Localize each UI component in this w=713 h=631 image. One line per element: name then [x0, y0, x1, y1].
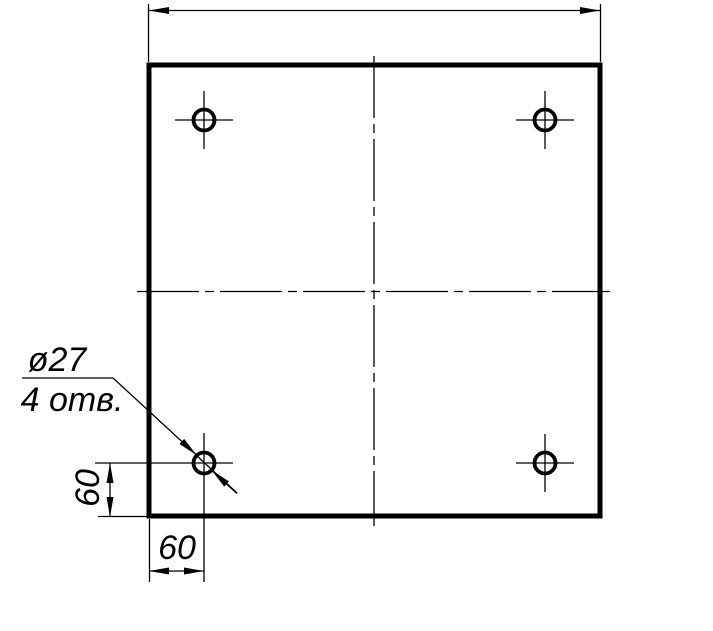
plate-drawing: ø27 4 отв. 60 60: [0, 0, 713, 631]
label-hole-diameter: ø27: [28, 341, 88, 379]
dimension-top: [149, 4, 601, 62]
label-hole-count: 4 отв.: [21, 381, 124, 419]
drawing-canvas: ø27 4 отв. 60 60: [0, 0, 713, 631]
dim-label-vertical: 60: [69, 469, 107, 507]
dimension-horizontal-60: 60: [149, 519, 204, 582]
dim-label-horizontal: 60: [158, 529, 196, 567]
dimension-vertical-60: 60: [69, 463, 148, 517]
